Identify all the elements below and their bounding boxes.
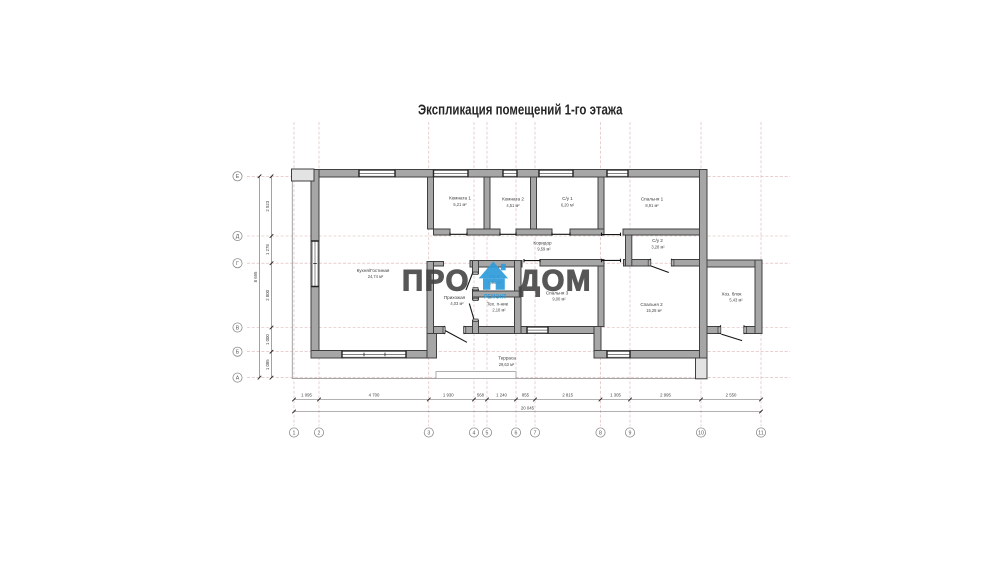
svg-text:3: 3 bbox=[427, 430, 430, 436]
svg-text:1 240: 1 240 bbox=[496, 393, 507, 398]
svg-text:ПРО: ПРО bbox=[402, 265, 470, 298]
svg-text:1: 1 bbox=[293, 430, 296, 436]
svg-text:4,51 м²: 4,51 м² bbox=[506, 203, 520, 208]
svg-text:4: 4 bbox=[473, 430, 476, 436]
svg-text:В: В bbox=[236, 325, 240, 331]
svg-text:5: 5 bbox=[486, 430, 489, 436]
svg-text:Д: Д bbox=[236, 234, 240, 240]
svg-text:Хоз. блок: Хоз. блок bbox=[722, 291, 743, 296]
svg-text:29,63 м²: 29,63 м² bbox=[499, 362, 515, 367]
svg-text:1 085: 1 085 bbox=[265, 359, 270, 370]
svg-text:8: 8 bbox=[599, 430, 602, 436]
svg-text:Коридор: Коридор bbox=[533, 240, 552, 245]
svg-text:2 550: 2 550 bbox=[726, 393, 737, 398]
svg-text:4 700: 4 700 bbox=[369, 393, 380, 398]
svg-text:7: 7 bbox=[534, 430, 537, 436]
svg-text:Спальня 2: Спальня 2 bbox=[640, 302, 663, 307]
svg-text:2 800: 2 800 bbox=[265, 289, 270, 300]
svg-text:Тех. п-ние: Тех. п-ние bbox=[487, 301, 509, 306]
svg-text:24,74 м²: 24,74 м² bbox=[368, 274, 384, 279]
svg-text:10: 10 bbox=[698, 430, 704, 436]
svg-text:Б: Б bbox=[236, 350, 240, 356]
svg-text:Комната 2: Комната 2 bbox=[502, 197, 524, 202]
svg-text:6: 6 bbox=[515, 430, 518, 436]
svg-text:855: 855 bbox=[522, 393, 530, 398]
svg-text:8 695: 8 695 bbox=[253, 271, 258, 282]
svg-text:3,28 м²: 3,28 м² bbox=[651, 245, 665, 250]
svg-text:1 930: 1 930 bbox=[443, 393, 454, 398]
svg-text:8,91 м²: 8,91 м² bbox=[645, 203, 659, 208]
svg-text:Терраса: Терраса bbox=[498, 356, 516, 361]
svg-text:1 095: 1 095 bbox=[301, 393, 312, 398]
svg-text:2 523: 2 523 bbox=[265, 200, 270, 211]
svg-text:2: 2 bbox=[318, 430, 321, 436]
svg-text:А: А bbox=[236, 376, 240, 382]
svg-text:Комната 1: Комната 1 bbox=[449, 196, 471, 201]
svg-text:2,18 м²: 2,18 м² bbox=[492, 307, 506, 312]
svg-text:1 305: 1 305 bbox=[610, 393, 621, 398]
svg-text:Экспликация помещений 1-го эта: Экспликация помещений 1-го этажа bbox=[418, 102, 623, 119]
svg-text:5,21 м²: 5,21 м² bbox=[453, 202, 467, 207]
svg-text:11: 11 bbox=[758, 430, 763, 436]
svg-text:2 995: 2 995 bbox=[660, 393, 671, 398]
svg-text:РЕМОНТ: РЕМОНТ bbox=[484, 294, 507, 301]
svg-text:С/у 2: С/у 2 bbox=[652, 238, 663, 243]
svg-text:1 000: 1 000 bbox=[265, 334, 270, 345]
svg-text:ДОМ: ДОМ bbox=[519, 265, 592, 298]
svg-text:568: 568 bbox=[477, 393, 485, 398]
svg-text:Г: Г bbox=[236, 261, 239, 267]
svg-text:Кухня/Гостиная: Кухня/Гостиная bbox=[357, 268, 390, 273]
svg-text:1 278: 1 278 bbox=[265, 244, 270, 255]
svg-text:20 045: 20 045 bbox=[521, 405, 535, 410]
svg-text:Спальня 1: Спальня 1 bbox=[641, 197, 664, 202]
svg-text:С/у 1: С/у 1 bbox=[562, 196, 573, 201]
svg-text:15,28 м²: 15,28 м² bbox=[646, 308, 662, 313]
svg-text:9: 9 bbox=[629, 430, 632, 436]
svg-text:5,43 м²: 5,43 м² bbox=[729, 298, 743, 303]
svg-text:Е: Е bbox=[236, 174, 240, 180]
svg-text:4,03 м²: 4,03 м² bbox=[450, 301, 464, 306]
svg-text:2 815: 2 815 bbox=[562, 393, 573, 398]
svg-text:9,59 м²: 9,59 м² bbox=[537, 246, 551, 251]
svg-text:6,20 м²: 6,20 м² bbox=[561, 203, 575, 208]
